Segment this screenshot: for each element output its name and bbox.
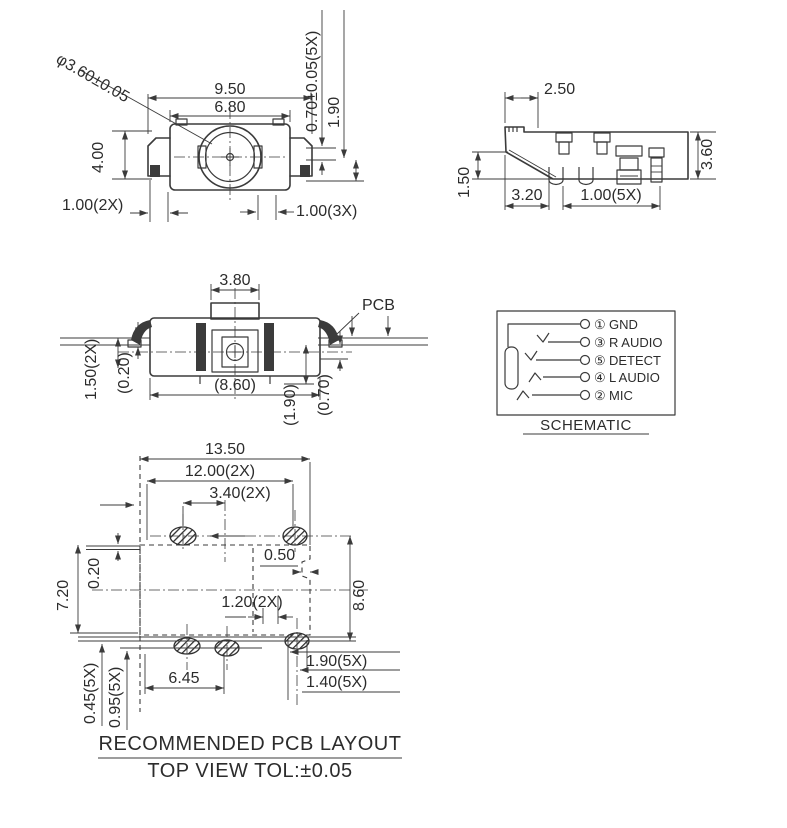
pin-num: ④ <box>594 370 606 385</box>
pin-label: L AUDIO <box>609 370 660 385</box>
dim-190-sec: (1.90) <box>282 384 299 426</box>
pcb-layout: 13.50 12.00(2X) 3.40(2X) 0.50 0.20 <box>55 441 400 730</box>
jack-sleeve-symbol <box>505 347 518 389</box>
dim-070-sec: (0.70) <box>316 374 333 416</box>
dim-020-sec: (0.20) <box>116 352 133 394</box>
dim-150: 1.50 <box>456 167 473 198</box>
dim-095: 0.95(5X) <box>107 667 124 728</box>
dim-diameter: φ3.60±0.05 <box>53 51 132 106</box>
footer-subtitle: TOP VIEW TOL:±0.05 <box>147 760 352 782</box>
dim-070: 0.70±0.05(5X) <box>304 31 321 132</box>
section-view: PCB 3.80 1.50(2X) (0.20) (8.60) <box>60 272 428 426</box>
pin-num: ② <box>594 388 606 403</box>
section-view-dimensions: PCB 3.80 1.50(2X) (0.20) (8.60) <box>83 272 395 426</box>
dim-250: 2.50 <box>544 81 575 98</box>
dim-050: 0.50 <box>264 547 295 564</box>
dim-120: 1.20(2X) <box>221 594 282 611</box>
dim-320: 3.20 <box>511 187 542 204</box>
terminal-circle <box>581 338 590 347</box>
solder-pad <box>174 638 200 654</box>
side-view-body <box>505 127 688 185</box>
technical-drawing-canvas: 9.50 6.80 φ3.60±0.05 4.00 0.70±0.05(5X) <box>0 0 787 828</box>
dim-860-sec: (8.60) <box>214 377 256 394</box>
dim-950: 9.50 <box>214 81 245 98</box>
dim-190: 1.90 <box>326 97 343 128</box>
dim-1200: 12.00(2X) <box>185 463 255 480</box>
schematic: ① GND ③ R AUDIO ⑤ DETECT ④ L AUDIO ② MIC… <box>497 311 675 434</box>
side-view: 2.50 1.50 3.20 1.00(5X) 3.60 <box>456 81 716 210</box>
pin-label: DETECT <box>609 353 661 368</box>
dim-140: 1.40(5X) <box>306 674 367 691</box>
footer: RECOMMENDED PCB LAYOUT TOP VIEW TOL:±0.0… <box>98 733 402 782</box>
schematic-caption: SCHEMATIC <box>540 417 632 434</box>
pcb-layout-dimensions: 13.50 12.00(2X) 3.40(2X) 0.50 0.20 <box>55 441 400 730</box>
dim-1350: 13.50 <box>205 441 245 458</box>
dim-045: 0.45(5X) <box>82 663 99 724</box>
dim-020-pcb: 0.20 <box>86 558 103 589</box>
dim-340: 3.40(2X) <box>209 485 270 502</box>
dim-190-pcb: 1.90(5X) <box>306 653 367 670</box>
pin-num: ① <box>594 317 606 332</box>
dim-860-pcb: 8.60 <box>351 580 368 611</box>
connector-drawing: 9.50 6.80 φ3.60±0.05 4.00 0.70±0.05(5X) <box>0 0 787 828</box>
dim-645: 6.45 <box>168 670 199 687</box>
dim-100-5x: 1.00(5X) <box>580 187 641 204</box>
pin-label: MIC <box>609 388 633 403</box>
pcb-label: PCB <box>362 297 395 314</box>
dim-720: 7.20 <box>55 580 72 611</box>
dim-360: 3.60 <box>699 139 716 170</box>
schematic-pin-labels: ① GND ③ R AUDIO ⑤ DETECT ④ L AUDIO ② MIC <box>594 317 662 403</box>
dim-400: 4.00 <box>90 142 107 173</box>
terminal-circle <box>581 373 590 382</box>
pin-label: R AUDIO <box>609 335 662 350</box>
pin-num: ③ <box>594 335 606 350</box>
dim-380: 3.80 <box>219 272 250 289</box>
solder-pad <box>283 527 307 545</box>
footer-title: RECOMMENDED PCB LAYOUT <box>99 733 402 755</box>
dim-150-2x: 1.50(2X) <box>83 339 100 400</box>
terminal-circle <box>581 391 590 400</box>
side-view-dimensions: 2.50 1.50 3.20 1.00(5X) 3.60 <box>456 81 716 210</box>
front-view: 9.50 6.80 φ3.60±0.05 4.00 0.70±0.05(5X) <box>53 10 364 222</box>
dim-680: 6.80 <box>214 99 245 116</box>
schematic-wires <box>508 320 590 401</box>
terminal-circle <box>581 356 590 365</box>
dim-100-3x: 1.00(3X) <box>296 203 357 220</box>
terminal-circle <box>581 320 590 329</box>
pin-num: ⑤ <box>594 353 606 368</box>
solder-pad <box>170 527 196 545</box>
dim-100-2x: 1.00(2X) <box>62 197 123 214</box>
pin-label: GND <box>609 317 638 332</box>
